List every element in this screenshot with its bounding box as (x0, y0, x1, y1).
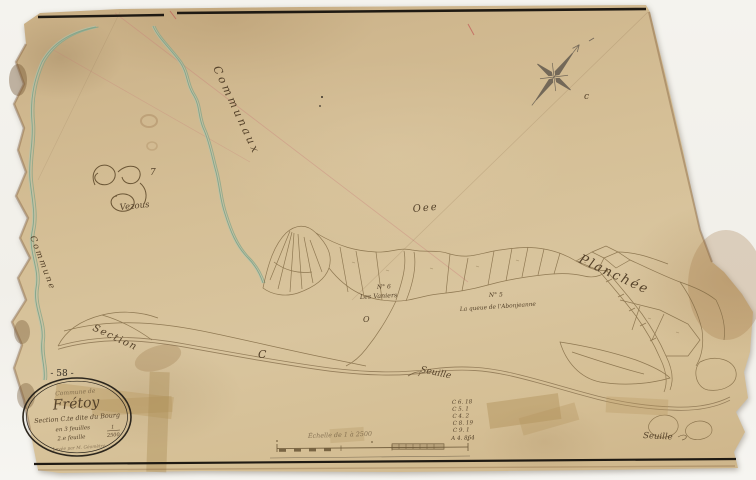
cartouche-scale-numerator: 1 (111, 424, 115, 430)
cartouche-surveyor-line: Levée par M. Géomètre (52, 444, 106, 453)
cartouche-section-line: Section C.te dite du Bourg (34, 411, 120, 425)
label-communaux: Communaux (210, 64, 263, 157)
label-parcel6-name: Les Vaniers (359, 291, 399, 301)
paper-stains (9, 64, 756, 409)
label-planchee: Planchée (575, 252, 651, 298)
cartouche: - 58 - Commune de Frétoy Section C.te di… (23, 369, 131, 456)
scanned-map-page: c - 58 - Commune de Fr (0, 0, 756, 480)
note-line: C 5. 1 (452, 406, 469, 413)
stream-north (153, 26, 265, 283)
label-vezous: Vezous (119, 200, 150, 213)
label-parcel6-number: N° 6 (376, 283, 392, 291)
label-commune-left: Commune (27, 234, 57, 291)
note-line: C 4. 2 (452, 413, 469, 420)
label-parcel5-name: La queue de l'Abonjeanne (459, 302, 537, 313)
note-line: C 8. 19 (453, 420, 474, 427)
scale-bar: Échelle de 1 à 2500 (276, 429, 469, 452)
construction-lines (38, 11, 648, 300)
cartouche-feuille-line: 2.e feuille (56, 434, 86, 442)
note-line: C 9. 1 (453, 427, 470, 434)
note-line: A 4. 864 (450, 435, 475, 442)
label-vezous-number: 7 (150, 168, 156, 178)
map-drawing: c - 58 - Commune de Fr (0, 0, 756, 480)
map-labels: Communaux Commune 7 Vezous Oee Planchée … (27, 64, 686, 443)
reference-notes: C 6. 18 C 5. 1 C 4. 2 C 8. 19 C 9. 1 A 4… (449, 399, 476, 442)
sheet-number: - 58 - (50, 369, 73, 379)
cartouche-feuilles-line: en 3 feuilles (55, 425, 90, 433)
cartouche-scale-denominator: 2500 (106, 432, 121, 439)
label-seuille-right: Seuille (643, 431, 673, 443)
note-line: C 6. 18 (452, 399, 473, 406)
label-oee: Oee (412, 202, 439, 215)
cartouche-title: Frétoy (51, 394, 101, 413)
compass-c-mark: c (584, 92, 589, 102)
left-boundary-stream (30, 27, 99, 380)
label-stray-o: O (363, 315, 370, 324)
label-stray-c: C (258, 348, 267, 361)
label-parcel5-number: N° 5 (488, 291, 504, 299)
